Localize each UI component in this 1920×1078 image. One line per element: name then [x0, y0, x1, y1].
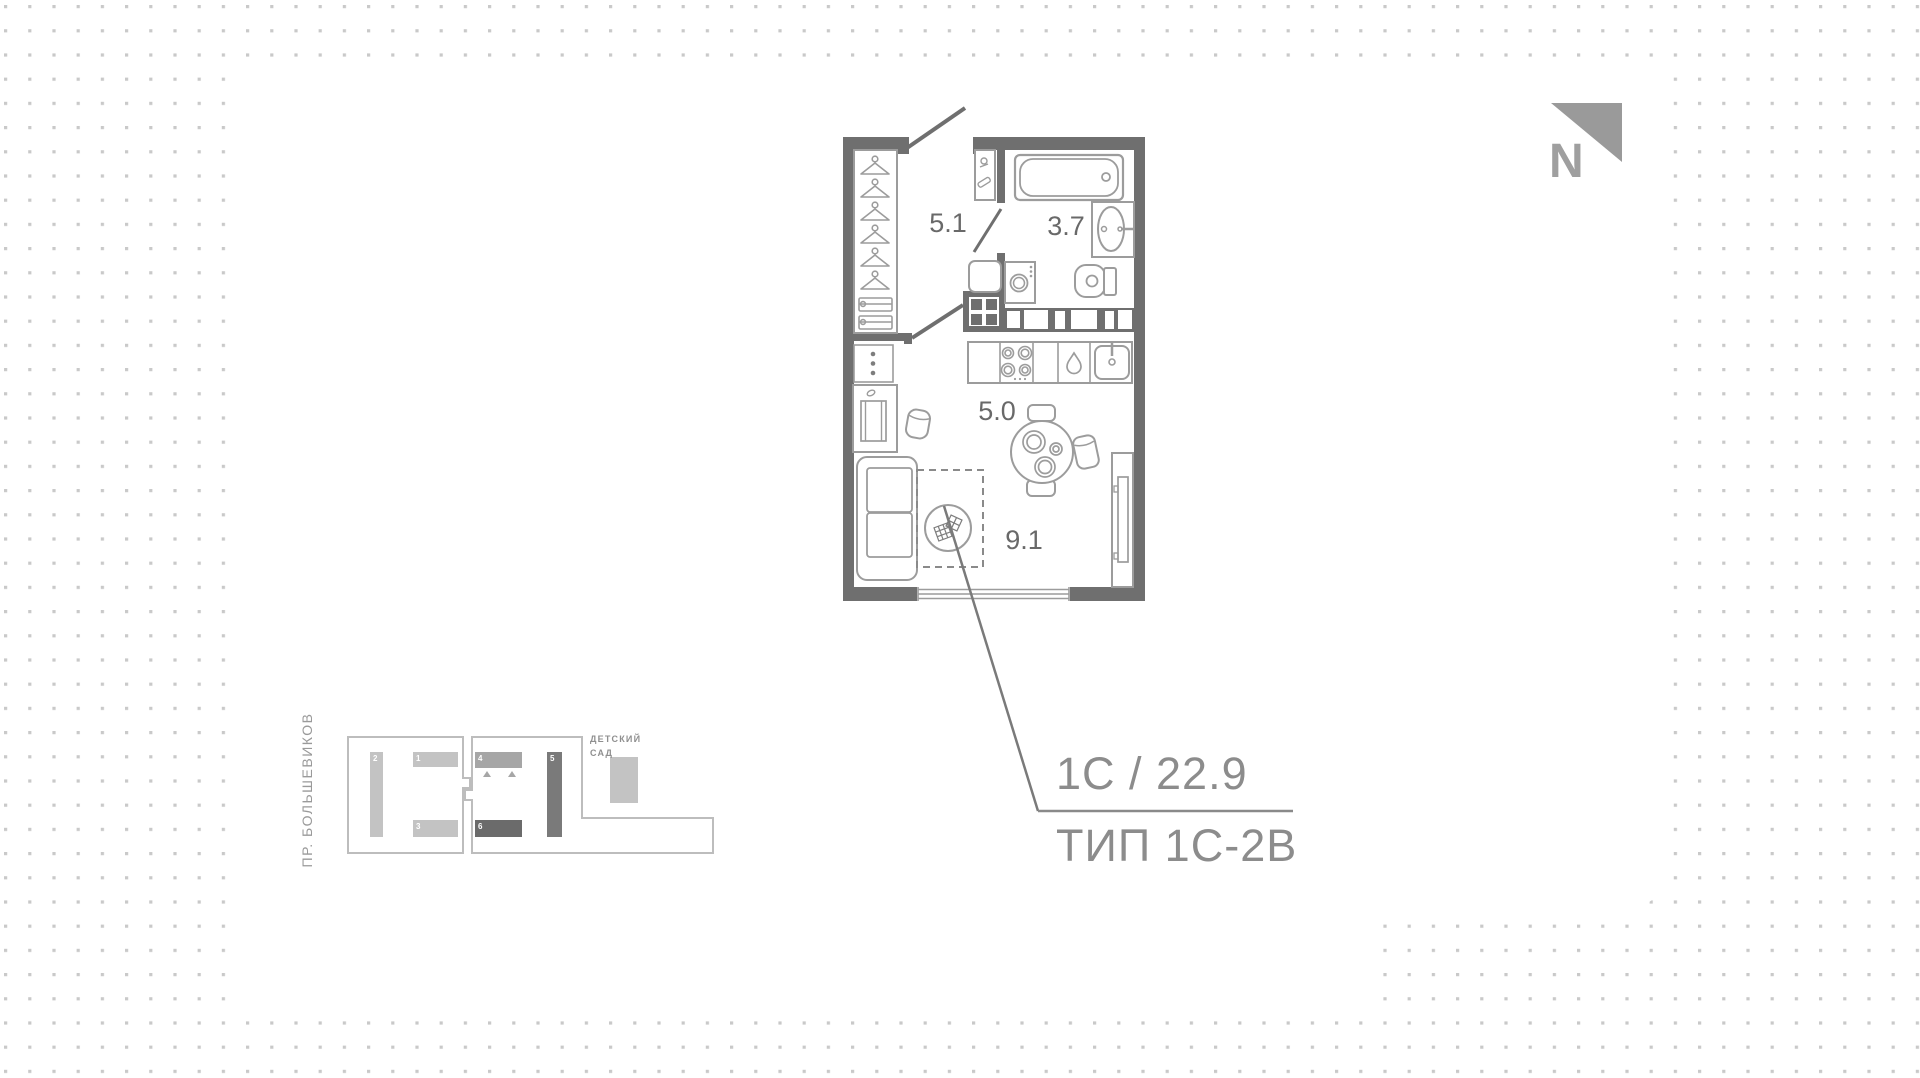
page: 5.1 3.7 5.0 9.1 N 1С / 22.9 ТИП 1С-2В 2 …	[0, 0, 1920, 1078]
overlay-graphics: N	[0, 0, 1920, 1078]
site-map: 2 1 3 4 5 6	[285, 700, 735, 880]
callout-leader-line	[944, 506, 1038, 811]
building-4-label: 4	[478, 754, 483, 763]
kindergarten-label: ДЕТСКИЙ САД	[590, 733, 641, 760]
north-label: N	[1549, 135, 1584, 188]
building-3-label: 3	[416, 822, 421, 831]
building-2-label: 2	[373, 754, 378, 763]
entrance-markers	[483, 771, 516, 777]
street-name: ПР. БОЛЬШЕВИКОВ	[299, 710, 315, 870]
apartment-type: ТИП 1С-2В	[1056, 820, 1297, 872]
apartment-code: 1С / 22.9	[1056, 748, 1248, 800]
building-5-label: 5	[550, 754, 555, 763]
kindergarten-block	[610, 757, 638, 803]
building-1-label: 1	[416, 754, 421, 763]
building-5	[547, 752, 562, 837]
building-2	[370, 752, 383, 837]
building-6-label: 6	[478, 822, 483, 831]
